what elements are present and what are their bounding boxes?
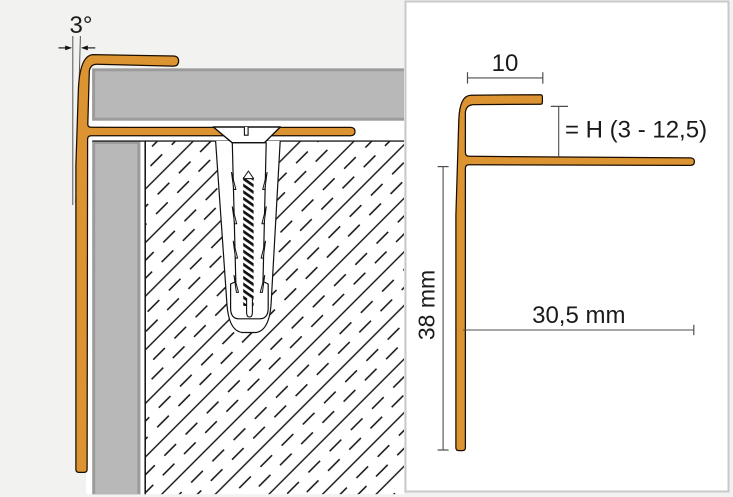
svg-text:30,5 mm: 30,5 mm — [532, 302, 625, 329]
svg-text:= H (3 - 12,5): = H (3 - 12,5) — [565, 117, 707, 144]
svg-text:38 mm: 38 mm — [414, 270, 440, 340]
svg-text:10: 10 — [492, 50, 519, 77]
svg-text:3°: 3° — [70, 12, 93, 39]
